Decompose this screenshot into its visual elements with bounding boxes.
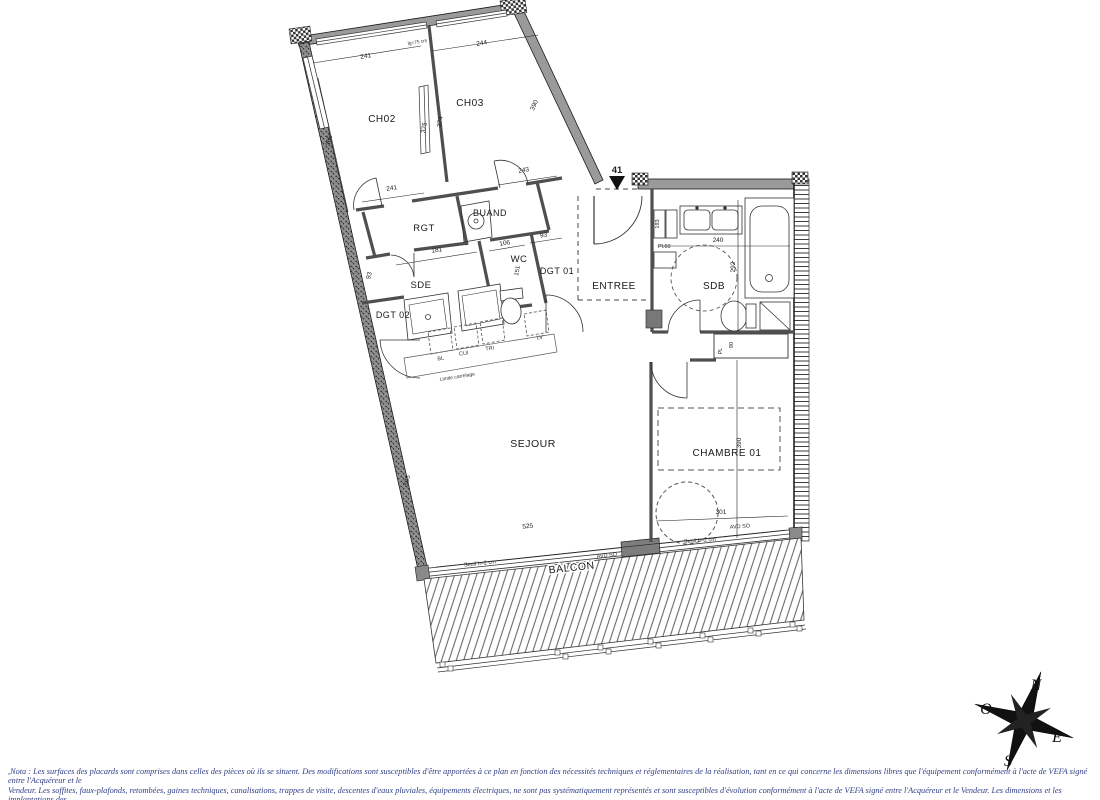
room-label-wc: WC bbox=[511, 254, 528, 265]
sdb-placard-60 bbox=[654, 252, 676, 268]
dim-chambre-height: 390 bbox=[736, 437, 743, 448]
floor-plan-page: CH02 CH03 RGT BUAND WC DGT 01 SDE DGT 02… bbox=[0, 0, 1100, 800]
annotation-limite-carrelage: Limite carrelage bbox=[439, 371, 475, 383]
dim-sejour-height: 505 bbox=[403, 474, 412, 487]
room-label-rgt: RGT bbox=[413, 223, 435, 234]
compass-west-label: O bbox=[980, 701, 992, 718]
room-label-entree: ENTREE bbox=[592, 281, 636, 292]
dim-sdb-height: 292 bbox=[730, 261, 737, 272]
chambre01-dashed bbox=[656, 408, 780, 544]
floor-plan-drawing: CH02 CH03 RGT BUAND WC DGT 01 SDE DGT 02… bbox=[0, 0, 1100, 800]
room-label-dgt01: DGT 01 bbox=[540, 266, 574, 276]
dim-sejour-width: 525 bbox=[522, 522, 534, 530]
sdb-toilet bbox=[721, 301, 747, 331]
dim-chambre-width: 301 bbox=[716, 509, 727, 516]
shower-sde bbox=[404, 284, 504, 340]
legal-note-line1: ,Nota : Les surfaces des placards sont c… bbox=[8, 767, 1093, 786]
placard-pl90 bbox=[714, 334, 788, 358]
dim-ch02-top: 241 bbox=[360, 52, 372, 61]
room-label-chambre01: CHAMBRE 01 bbox=[693, 448, 762, 459]
windows-north bbox=[303, 10, 507, 129]
wardrobe-ch02 bbox=[419, 85, 430, 154]
appliance-lv: LV bbox=[536, 335, 543, 342]
dim-ch03-right: 390 bbox=[529, 99, 540, 112]
appliance-bl: BL bbox=[437, 356, 445, 363]
dim-ch03-top: 244 bbox=[476, 39, 488, 48]
dim-placard-90: 90 bbox=[729, 342, 735, 348]
dim-sdb-width: 240 bbox=[713, 237, 724, 244]
room-label-sde: SDE bbox=[410, 280, 431, 291]
dim-placard-pl: PL bbox=[718, 348, 724, 354]
entrance-arrow-icon bbox=[609, 176, 625, 190]
exterior-walls bbox=[289, 0, 809, 574]
room-label-sejour: SEJOUR bbox=[510, 438, 556, 450]
legal-note-line2: Vendeur. Les soffites, faux-plafonds, re… bbox=[8, 786, 1093, 800]
room-label-buand: BUAND bbox=[473, 208, 507, 218]
appliance-tri: TRI bbox=[485, 345, 495, 352]
appliance-cui: CUI bbox=[459, 350, 470, 357]
dim-ch03-bot: 243 bbox=[518, 166, 530, 175]
kitchen-tiling-limit bbox=[404, 334, 557, 378]
dim-partition-right: 374 bbox=[436, 115, 445, 127]
duct-block bbox=[646, 310, 662, 328]
dim-wc-width: 106 bbox=[499, 239, 511, 248]
room-label-ch02: CH02 bbox=[368, 114, 396, 125]
entrance-marker: 41 bbox=[609, 165, 625, 190]
room-label-ch03: CH03 bbox=[456, 98, 484, 109]
dim-sde-width: 181 bbox=[431, 246, 443, 255]
compass-north-label: N bbox=[1030, 677, 1043, 694]
dim-ch02-bot: 241 bbox=[386, 184, 398, 193]
sdb-fixtures bbox=[654, 198, 794, 331]
compass-east-label: E bbox=[1051, 729, 1062, 746]
room-label-sdb: SDB bbox=[703, 281, 725, 292]
unit-number: 41 bbox=[612, 165, 623, 176]
annotation-avd-chambre: AVD SO bbox=[730, 523, 751, 530]
dim-cabinet-193: 193 bbox=[655, 219, 661, 228]
annotation-lg75: lg=75 cm bbox=[407, 38, 427, 47]
dim-dgt01-top: 93 bbox=[540, 231, 549, 239]
sdb-turning-circle bbox=[671, 245, 737, 311]
dim-pl60: Pl.60 bbox=[658, 244, 671, 250]
room-label-dgt02: DGT 02 bbox=[376, 310, 410, 320]
dim-sde-left: 93 bbox=[365, 271, 374, 280]
legal-note: ,Nota : Les surfaces des placards sont c… bbox=[8, 767, 1093, 800]
dim-wc-height: 151 bbox=[514, 265, 522, 277]
